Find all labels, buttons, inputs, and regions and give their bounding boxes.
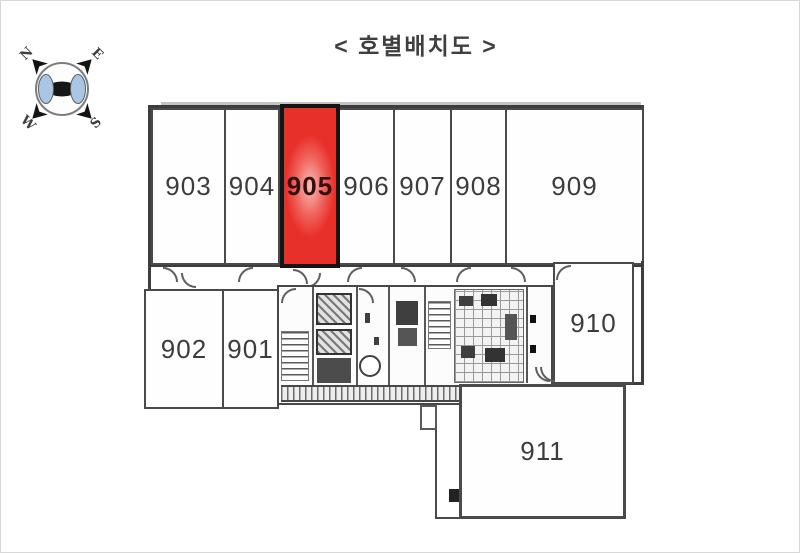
compass-east-petal [71,75,86,104]
unit-904-label: 904 [229,171,275,202]
unit-905-highlighted: 905 [280,104,340,268]
wall-tick [530,345,536,353]
unit-903-label: 903 [165,171,211,202]
fixture [461,346,475,358]
unit-905-label: 905 [287,171,333,202]
door-arc [511,267,526,282]
door-arc [281,288,296,303]
core-wall [356,287,358,385]
unit-901-label: 901 [227,334,273,365]
unit-911-label: 911 [520,436,564,467]
core-wall [526,287,528,383]
unit-910-label: 910 [570,308,616,339]
door-arc [456,267,471,282]
core-wall [424,287,426,385]
compass-rose: N E W S [7,23,119,139]
fixture [459,296,473,306]
unit-908: 908 [450,108,507,265]
unit-911: 911 [459,384,626,519]
door-arc [401,267,416,282]
elevator-shaft-1 [316,293,352,325]
stairwell-east [428,301,451,349]
bathroom-block [454,289,524,383]
fixture [505,314,517,340]
utility-block [317,358,351,383]
unit-907-label: 907 [399,171,445,202]
stairwell-west [281,331,309,381]
unit-909-label: 909 [551,171,597,202]
unit-901: 901 [222,289,279,409]
unit-907: 907 [393,108,452,265]
fixture [374,337,379,345]
door-arc [347,267,362,282]
wall-tick [530,315,536,323]
fixture [365,313,370,323]
wall-segment [641,261,644,384]
compass-west-petal [39,75,54,104]
wall-segment [148,263,151,291]
core-wall [388,287,390,385]
unit-906: 906 [338,108,395,265]
unit-906-label: 906 [343,171,389,202]
shaft-block [396,301,418,325]
core-wall [312,287,314,385]
door-arc [238,267,253,282]
door-arc [181,273,196,288]
elevator-shaft-2 [316,329,352,355]
fixture [481,294,497,306]
unit-903: 903 [151,108,226,265]
floorplan-canvas: < 호별배치도 > N E W S 903 904 906 907 908 90… [0,0,800,553]
spiral-stair-circle [359,355,381,377]
unit-902: 902 [144,289,224,409]
wall-notch [420,405,437,430]
fixture [485,348,505,362]
unit-908-label: 908 [455,171,501,202]
door-arc [163,267,178,282]
unit-904: 904 [224,108,280,265]
unit-910: 910 [553,262,634,384]
page-title: < 호별배치도 > [301,27,531,61]
unit-902-label: 902 [161,334,207,365]
fixture [449,489,459,502]
door-arc [359,288,374,303]
shaft-block [398,328,417,346]
unit-909: 909 [505,108,644,265]
